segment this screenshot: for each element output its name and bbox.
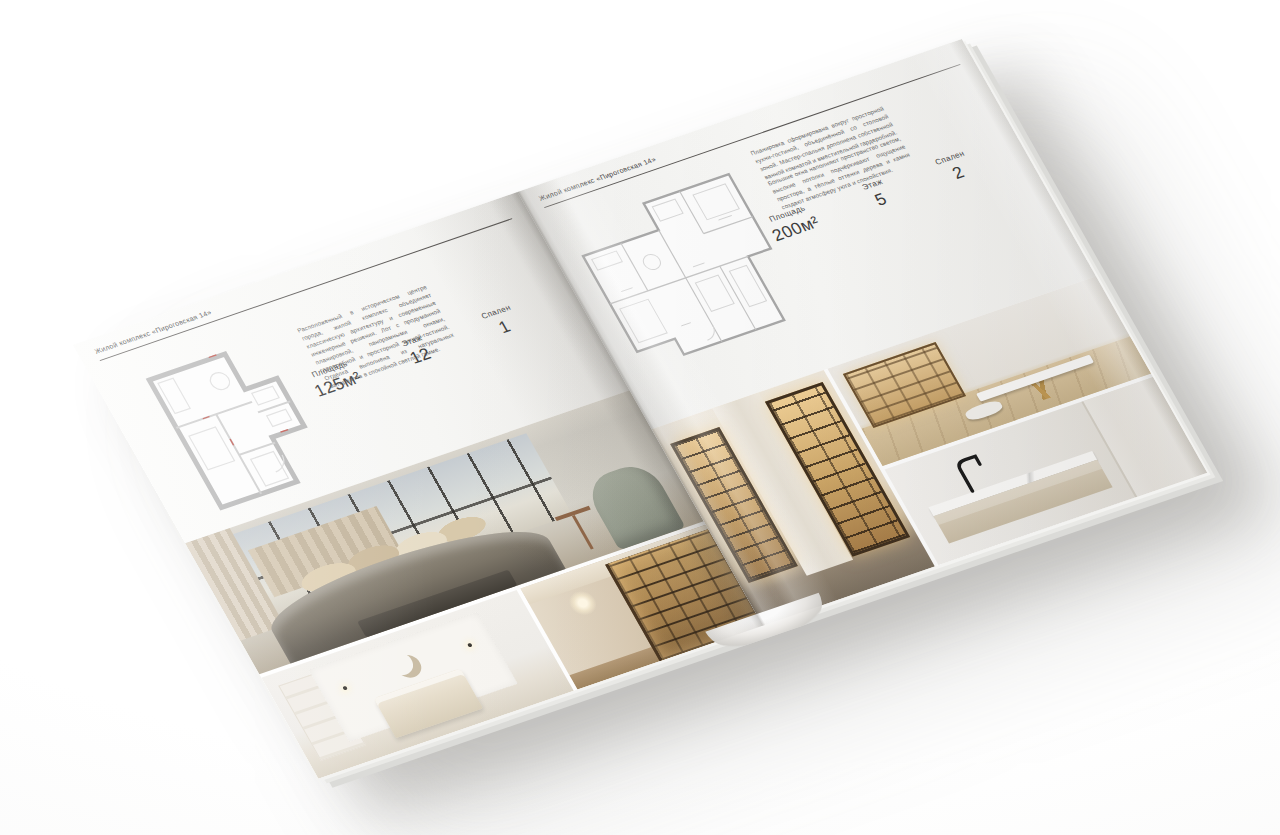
stat-area: Площадь 200м² [755, 199, 832, 248]
brochure-spread: Жилой комплекс «Пироговская 14» [73, 39, 1207, 779]
photo-backdrop: Жилой комплекс «Пироговская 14» [0, 0, 1280, 835]
stat-bedrooms: Спален 1 [464, 298, 541, 347]
stat-area: Площадь 125м² [297, 355, 374, 404]
stat-bedrooms: Спален 2 [917, 143, 994, 192]
chandelier-glow [564, 587, 602, 618]
floor [569, 646, 662, 689]
